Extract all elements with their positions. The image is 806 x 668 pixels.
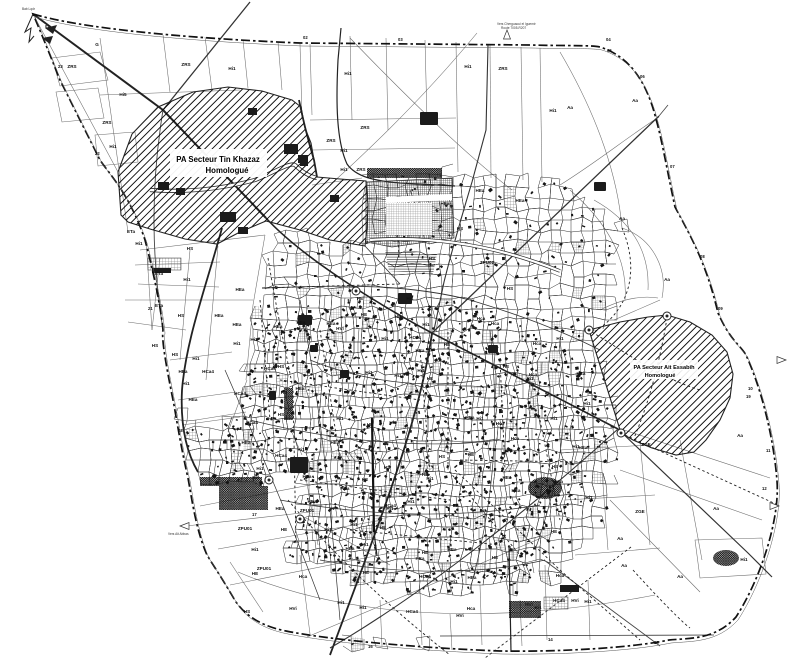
svg-text:ETa: ETa xyxy=(155,271,164,276)
svg-text:Hi1: Hi1 xyxy=(340,167,348,172)
svg-text:HEa: HEa xyxy=(276,506,285,511)
svg-text:HE: HE xyxy=(468,452,474,457)
svg-text:Hi1: Hi1 xyxy=(740,557,748,562)
svg-text:10: 10 xyxy=(748,386,753,391)
svg-text:HEa: HEa xyxy=(346,546,355,551)
svg-text:HE: HE xyxy=(380,525,386,530)
svg-text:HEa: HEa xyxy=(577,371,586,376)
svg-text:ETa: ETa xyxy=(127,229,136,234)
svg-text:HS: HS xyxy=(278,364,284,369)
svg-text:Hi1: Hi1 xyxy=(251,547,259,552)
svg-text:Homologué: Homologué xyxy=(206,166,250,175)
svg-text:Hi1: Hi1 xyxy=(583,401,591,406)
svg-text:HE: HE xyxy=(492,555,498,560)
svg-text:Aa: Aa xyxy=(621,563,627,568)
svg-text:HCa4: HCa4 xyxy=(264,366,276,371)
svg-text:Hi1: Hi1 xyxy=(250,337,258,342)
svg-text:HEa: HEa xyxy=(503,475,512,480)
svg-text:HS: HS xyxy=(439,454,445,459)
svg-text:Hi1: Hi1 xyxy=(534,605,542,610)
svg-text:HEa: HEa xyxy=(466,415,475,420)
svg-text:Hi1: Hi1 xyxy=(297,447,305,452)
svg-text:Hi1: Hi1 xyxy=(350,522,358,527)
svg-text:23: 23 xyxy=(58,64,63,69)
svg-text:HCa4: HCa4 xyxy=(234,391,246,396)
svg-text:ZRS: ZRS xyxy=(181,62,190,67)
svg-text:Hi1: Hi1 xyxy=(417,368,425,373)
svg-text:HEa: HEa xyxy=(303,474,312,479)
svg-text:HCa4: HCa4 xyxy=(384,503,396,508)
svg-text:HEa: HEa xyxy=(579,445,588,450)
svg-text:Hi1: Hi1 xyxy=(359,605,367,610)
svg-text:ZRS: ZRS xyxy=(356,167,365,172)
svg-text:22: 22 xyxy=(95,151,100,156)
svg-text:Hca: Hca xyxy=(533,341,542,346)
svg-text:Hi1: Hi1 xyxy=(361,542,369,547)
svg-text:HEa: HEa xyxy=(274,324,283,329)
svg-text:06: 06 xyxy=(640,74,645,79)
svg-text:HEa: HEa xyxy=(416,348,425,353)
svg-text:HS: HS xyxy=(429,256,435,261)
svg-text:14: 14 xyxy=(548,637,553,642)
svg-text:ZGE: ZGE xyxy=(635,509,644,514)
svg-text:HS: HS xyxy=(384,465,390,470)
svg-text:Hi1: Hi1 xyxy=(389,420,397,425)
svg-text:Hi1: Hi1 xyxy=(549,108,557,113)
svg-text:Hca: Hca xyxy=(496,421,505,426)
svg-text:Aa: Aa xyxy=(617,536,623,541)
svg-text:ZRS: ZRS xyxy=(102,120,111,125)
svg-text:HS: HS xyxy=(278,412,284,417)
svg-text:HEa: HEa xyxy=(236,287,245,292)
svg-text:Hca: Hca xyxy=(556,573,565,578)
svg-text:12: 12 xyxy=(762,486,767,491)
svg-text:HEa: HEa xyxy=(189,397,198,402)
svg-text:HS: HS xyxy=(457,226,463,231)
svg-text:Hi5: Hi5 xyxy=(119,92,127,97)
svg-text:HEa: HEa xyxy=(476,188,485,193)
svg-text:HCa4: HCa4 xyxy=(202,369,214,374)
svg-text:HE: HE xyxy=(444,342,450,347)
svg-text:HCa4: HCa4 xyxy=(553,598,565,603)
svg-text:Aa: Aa xyxy=(567,105,573,110)
svg-text:HEa: HEa xyxy=(516,198,525,203)
svg-text:Aa: Aa xyxy=(677,574,683,579)
svg-text:HEa: HEa xyxy=(416,556,425,561)
svg-text:Hca: Hca xyxy=(491,321,500,326)
svg-text:HE: HE xyxy=(367,422,373,427)
svg-text:Hi1: Hi1 xyxy=(228,66,236,71)
svg-text:Aa: Aa xyxy=(632,98,638,103)
svg-text:HEa: HEa xyxy=(331,440,340,445)
svg-text:ZPU01: ZPU01 xyxy=(300,508,315,513)
svg-text:ZRS: ZRS xyxy=(498,66,507,71)
svg-text:ZRS: ZRS xyxy=(326,138,335,143)
svg-text:Hi1: Hi1 xyxy=(109,144,117,149)
svg-text:HVi: HVi xyxy=(289,606,297,611)
svg-text:HCa4: HCa4 xyxy=(419,574,431,579)
svg-text:04: 04 xyxy=(606,37,611,42)
svg-text:13: 13 xyxy=(654,640,659,645)
svg-text:HE: HE xyxy=(427,376,433,381)
svg-text:Hi1: Hi1 xyxy=(135,241,143,246)
svg-text:ZRS: ZRS xyxy=(67,64,76,69)
svg-text:19: 19 xyxy=(746,394,751,399)
svg-text:HEa: HEa xyxy=(341,486,350,491)
svg-text:Hca: Hca xyxy=(511,436,520,441)
svg-text:HEa: HEa xyxy=(448,547,457,552)
svg-text:ZPU02: ZPU02 xyxy=(480,260,495,265)
svg-text:ZPU01: ZPU01 xyxy=(257,566,272,571)
svg-text:HS: HS xyxy=(244,609,250,614)
svg-text:Hi1: Hi1 xyxy=(252,475,260,480)
svg-text:HEa: HEa xyxy=(308,499,317,504)
svg-text:Hi1: Hi1 xyxy=(183,277,191,282)
svg-text:Aa: Aa xyxy=(619,216,625,221)
svg-text:Hi1: Hi1 xyxy=(344,71,352,76)
svg-text:Hi1: Hi1 xyxy=(233,341,241,346)
svg-text:HEa: HEa xyxy=(512,488,521,493)
svg-text:HEa: HEa xyxy=(179,369,188,374)
svg-text:18: 18 xyxy=(178,428,183,433)
svg-text:Hi1: Hi1 xyxy=(365,370,373,375)
svg-text:HEa: HEa xyxy=(327,321,336,326)
svg-text:HS: HS xyxy=(281,390,287,395)
svg-text:HE: HE xyxy=(252,571,258,576)
svg-text:HE: HE xyxy=(422,472,428,477)
svg-text:08: 08 xyxy=(700,254,705,259)
svg-text:Hi1: Hi1 xyxy=(256,466,264,471)
svg-text:HCa4: HCa4 xyxy=(275,453,287,458)
svg-text:Bab Lqdr: Bab Lqdr xyxy=(22,7,36,11)
svg-text:PA Secteur Ait Essabih: PA Secteur Ait Essabih xyxy=(633,365,695,371)
svg-text:17: 17 xyxy=(252,512,257,517)
svg-text:Hi1: Hi1 xyxy=(450,579,458,584)
svg-text:HE: HE xyxy=(551,529,557,534)
svg-text:G: G xyxy=(95,42,99,47)
svg-text:Hi1: Hi1 xyxy=(422,322,430,327)
svg-text:HVi: HVi xyxy=(571,598,579,603)
svg-text:Aa: Aa xyxy=(664,277,670,282)
svg-text:Vers Ait Abbas: Vers Ait Abbas xyxy=(168,532,189,536)
svg-text:ZPU01: ZPU01 xyxy=(238,526,253,531)
svg-text:HVi: HVi xyxy=(525,602,533,607)
svg-text:HE: HE xyxy=(362,477,368,482)
svg-text:HE: HE xyxy=(363,570,369,575)
svg-text:HE: HE xyxy=(357,296,363,301)
svg-text:Hi1: Hi1 xyxy=(476,416,484,421)
svg-text:09: 09 xyxy=(718,306,723,311)
svg-text:HS: HS xyxy=(178,313,184,318)
svg-text:02: 02 xyxy=(303,35,308,40)
svg-text:HE: HE xyxy=(361,312,367,317)
svg-text:Hi1: Hi1 xyxy=(550,416,558,421)
svg-text:PA Secteur Tin Khazaz: PA Secteur Tin Khazaz xyxy=(176,155,260,164)
svg-text:HCa4: HCa4 xyxy=(409,335,421,340)
svg-text:ZRS: ZRS xyxy=(360,125,369,130)
svg-text:16: 16 xyxy=(368,644,373,649)
svg-text:Hi1: Hi1 xyxy=(324,527,332,532)
svg-text:Homologué: Homologué xyxy=(645,373,676,379)
svg-text:Hi1: Hi1 xyxy=(340,148,348,153)
svg-text:Aa: Aa xyxy=(713,506,719,511)
svg-text:Hi1: Hi1 xyxy=(394,373,402,378)
svg-text:HEa: HEa xyxy=(297,320,306,325)
svg-text:HCa4: HCa4 xyxy=(406,609,418,614)
svg-text:Hi1: Hi1 xyxy=(464,64,472,69)
svg-text:Hi1: Hi1 xyxy=(556,336,564,341)
svg-text:Hca: Hca xyxy=(477,316,486,321)
svg-text:HS: HS xyxy=(152,343,158,348)
svg-text:Hi1: Hi1 xyxy=(337,600,345,605)
svg-text:Hca: Hca xyxy=(467,606,476,611)
svg-text:11: 11 xyxy=(766,448,771,453)
svg-text:HEa: HEa xyxy=(215,313,224,318)
svg-text:01: 01 xyxy=(45,24,50,29)
svg-text:HE: HE xyxy=(281,527,287,532)
svg-text:Aa: Aa xyxy=(557,479,563,484)
svg-text:HS: HS xyxy=(172,352,178,357)
svg-text:HS: HS xyxy=(187,246,193,251)
svg-text:HEa: HEa xyxy=(468,575,477,580)
svg-text:21: 21 xyxy=(148,306,153,311)
svg-text:ZGE: ZGE xyxy=(641,442,650,447)
svg-text:HE: HE xyxy=(395,314,401,319)
svg-text:Aa: Aa xyxy=(737,433,743,438)
svg-text:07: 07 xyxy=(670,164,675,169)
svg-text:Hca: Hca xyxy=(299,574,308,579)
svg-text:HE: HE xyxy=(503,364,509,369)
svg-text:Hi1: Hi1 xyxy=(381,336,389,341)
svg-text:HCa4: HCa4 xyxy=(246,420,258,425)
svg-text:Hi1: Hi1 xyxy=(182,381,190,386)
svg-text:HS: HS xyxy=(552,464,558,469)
svg-text:Hi1: Hi1 xyxy=(192,356,200,361)
svg-text:HVl: HVl xyxy=(336,326,344,331)
svg-text:HEa: HEa xyxy=(233,322,242,327)
svg-text:HVi: HVi xyxy=(456,613,464,618)
svg-text:HS: HS xyxy=(507,286,513,291)
svg-text:HE: HE xyxy=(422,550,428,555)
svg-text:Hi1: Hi1 xyxy=(406,296,414,301)
svg-text:Hi1: Hi1 xyxy=(407,499,415,504)
svg-text:HEa: HEa xyxy=(296,386,305,391)
svg-text:HEa: HEa xyxy=(441,201,450,206)
svg-text:Hca: Hca xyxy=(529,372,538,377)
svg-text:Hi1: Hi1 xyxy=(336,416,344,421)
svg-text:03: 03 xyxy=(398,37,403,42)
svg-text:HEa: HEa xyxy=(242,440,251,445)
svg-text:Hi1: Hi1 xyxy=(585,495,593,500)
svg-text:Hi1: Hi1 xyxy=(584,599,592,604)
svg-text:05: 05 xyxy=(607,48,612,53)
svg-text:ETa: ETa xyxy=(155,303,164,308)
svg-text:Route 7005-R207: Route 7005-R207 xyxy=(501,26,526,30)
